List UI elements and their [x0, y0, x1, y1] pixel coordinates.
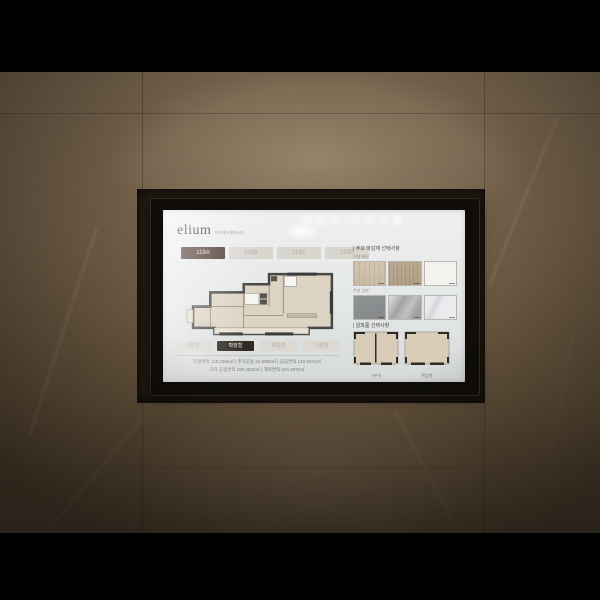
- photo-vignette: [0, 72, 600, 533]
- marble-wall: OTHER UNITS 풀스퍼크 가람배 elium 부산에코델타시티 119A…: [0, 72, 600, 533]
- letterbox-top: [0, 0, 600, 72]
- letterbox-bottom: [0, 533, 600, 600]
